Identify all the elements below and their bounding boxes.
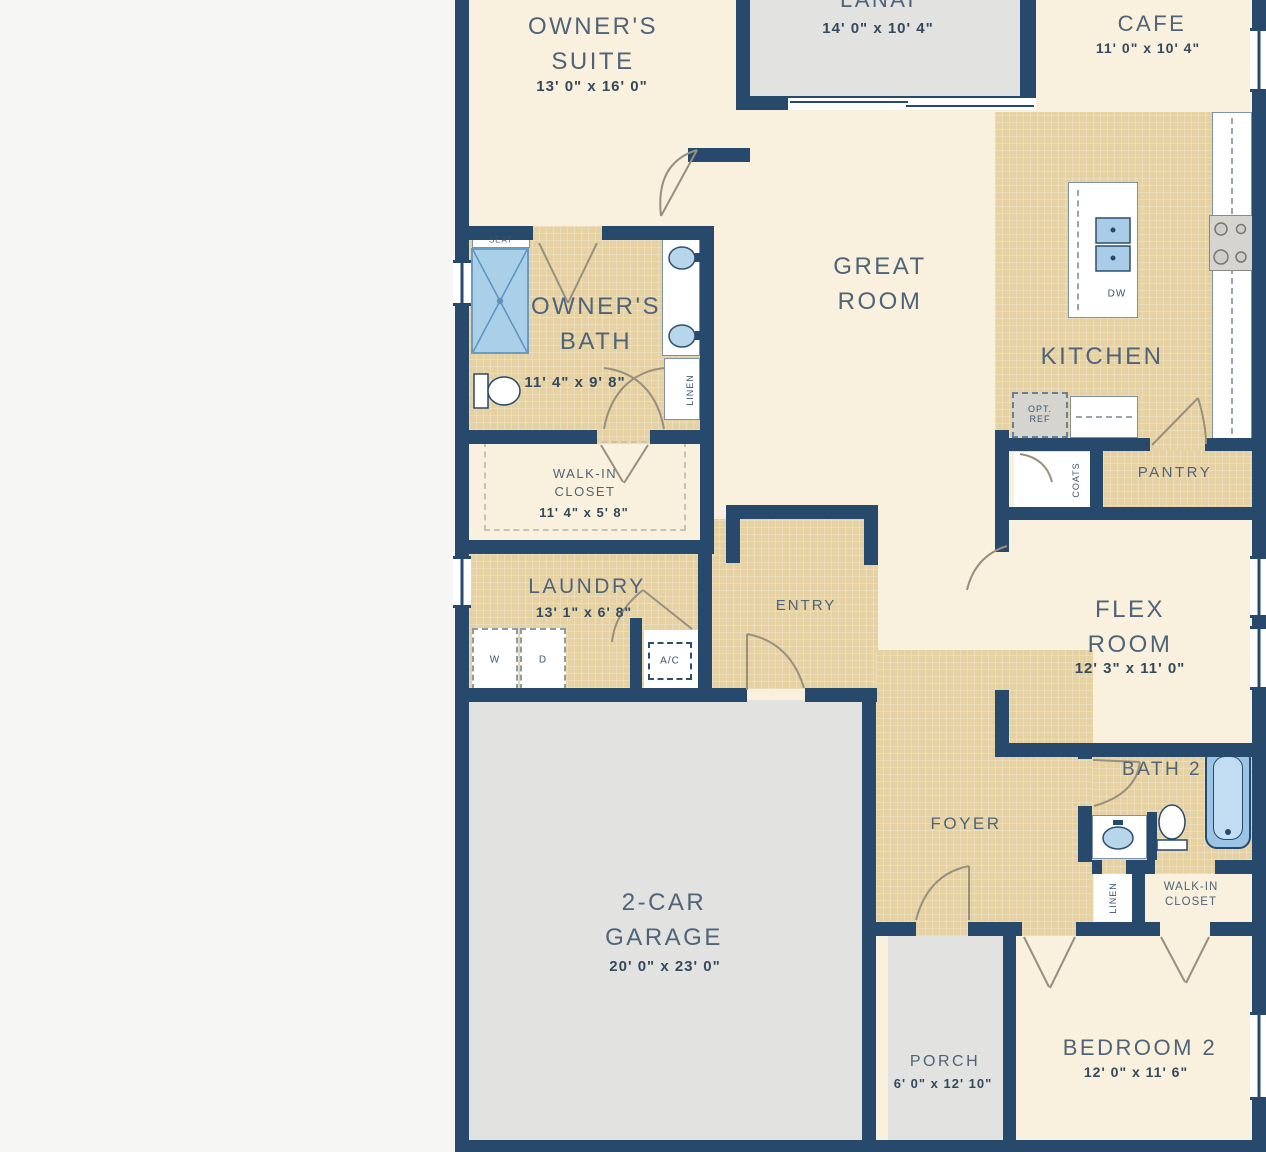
dims-flex-room: 12' 3" x 11' 0" bbox=[1075, 660, 1186, 677]
label-owners-bath: OWNER'S BATH bbox=[514, 290, 679, 360]
label-flex-room: FLEX ROOM bbox=[1073, 593, 1188, 663]
label-pantry: PANTRY bbox=[1138, 462, 1212, 484]
dims-bedroom2: 12' 0" x 11' 6" bbox=[1084, 1064, 1188, 1080]
toilet-1 bbox=[474, 374, 520, 408]
door-coats bbox=[1020, 454, 1052, 482]
island-sink bbox=[1096, 218, 1130, 271]
dims-owners-suite: 13' 0" x 16' 0" bbox=[536, 78, 647, 95]
label-bath2: BATH 2 bbox=[1122, 756, 1202, 784]
label-cafe: CAFE bbox=[1118, 8, 1187, 40]
stove-burners bbox=[1214, 223, 1246, 264]
dims-cafe: 11' 0" x 10' 4" bbox=[1096, 40, 1200, 56]
label-laundry: LAUNDRY bbox=[528, 572, 645, 602]
label-walkin-closet-2: WALK-IN CLOSET bbox=[1144, 880, 1239, 910]
label-kitchen: KITCHEN bbox=[1041, 340, 1164, 375]
label-porch: PORCH bbox=[910, 1050, 980, 1073]
label-great-room: GREAT ROOM bbox=[810, 250, 950, 320]
door-garage-entry bbox=[747, 634, 804, 690]
label-coats: COATS bbox=[1071, 462, 1081, 497]
label-seat: SEAT bbox=[489, 236, 513, 245]
label-dishwasher: DW bbox=[1108, 289, 1127, 300]
label-walkin-closet-1: WALK-IN CLOSET bbox=[533, 465, 638, 500]
label-bedroom2: BEDROOM 2 bbox=[1063, 1032, 1218, 1064]
dims-porch: 6' 0" x 12' 10" bbox=[894, 1076, 993, 1091]
toilet-2 bbox=[1157, 805, 1187, 850]
label-ac: A/C bbox=[660, 656, 680, 667]
door-arc-kitchen-hall bbox=[967, 546, 1007, 590]
label-entry: ENTRY bbox=[776, 595, 837, 617]
tub-drain bbox=[1225, 829, 1231, 835]
label-foyer: FOYER bbox=[930, 812, 1001, 837]
label-linen-2: LINEN bbox=[1108, 882, 1118, 914]
door-bedroom2 bbox=[1024, 937, 1075, 988]
label-dryer: D bbox=[539, 655, 547, 666]
dims-owners-bath: 11' 4" x 9' 8" bbox=[524, 374, 625, 391]
label-washer: W bbox=[490, 655, 500, 666]
dims-walkin-closet-1: 11' 4" x 5' 8" bbox=[539, 505, 629, 520]
floor-plan-canvas: OWNER'S SUITE 13' 0" x 16' 0" LANAI 14' … bbox=[0, 0, 1266, 1152]
door-pantry bbox=[1152, 398, 1206, 445]
dims-laundry: 13' 1" x 6' 8" bbox=[536, 604, 632, 620]
door-front-porch bbox=[916, 866, 969, 920]
dims-garage: 20' 0" x 23' 0" bbox=[609, 958, 720, 975]
dims-lanai: 14' 0" x 10' 4" bbox=[822, 20, 933, 37]
label-lanai: LANAI bbox=[840, 0, 916, 16]
label-linen-1: LINEN bbox=[685, 374, 695, 406]
door-walkin-closet-2 bbox=[1161, 937, 1209, 983]
label-garage: 2-CAR GARAGE bbox=[582, 886, 747, 956]
label-opt-ref: OPT. REF bbox=[1024, 404, 1056, 424]
label-owners-suite: OWNER'S SUITE bbox=[506, 10, 681, 80]
